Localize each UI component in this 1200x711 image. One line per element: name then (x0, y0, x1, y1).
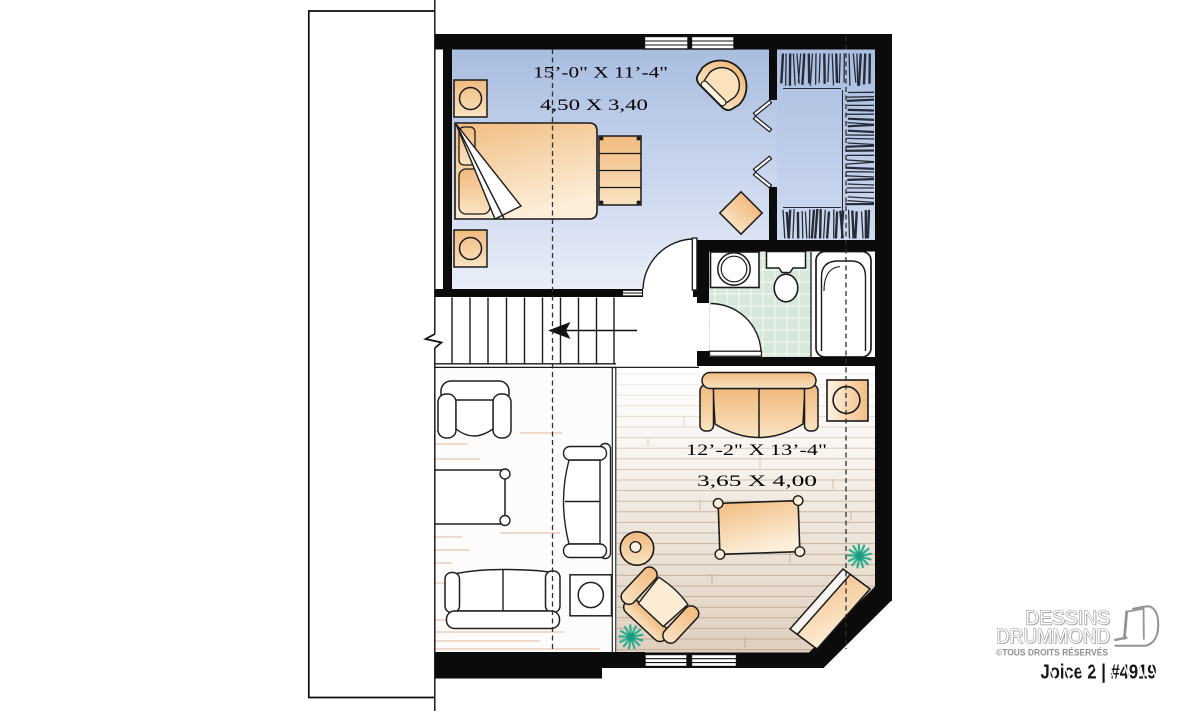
svg-text:12’-2" X 13’-4": 12’-2" X 13’-4" (686, 442, 827, 459)
svg-text:©TOUS DROITS RÉSERVÉS: ©TOUS DROITS RÉSERVÉS (996, 647, 1108, 657)
svg-text:3,65 X 4,00: 3,65 X 4,00 (697, 473, 817, 490)
svg-text:DRUMMOND: DRUMMOND (996, 625, 1110, 648)
svg-text:15’-0" X 11’-4": 15’-0" X 11’-4" (533, 65, 668, 82)
svg-text:4,50 X 3,40: 4,50 X 3,40 (540, 97, 648, 114)
